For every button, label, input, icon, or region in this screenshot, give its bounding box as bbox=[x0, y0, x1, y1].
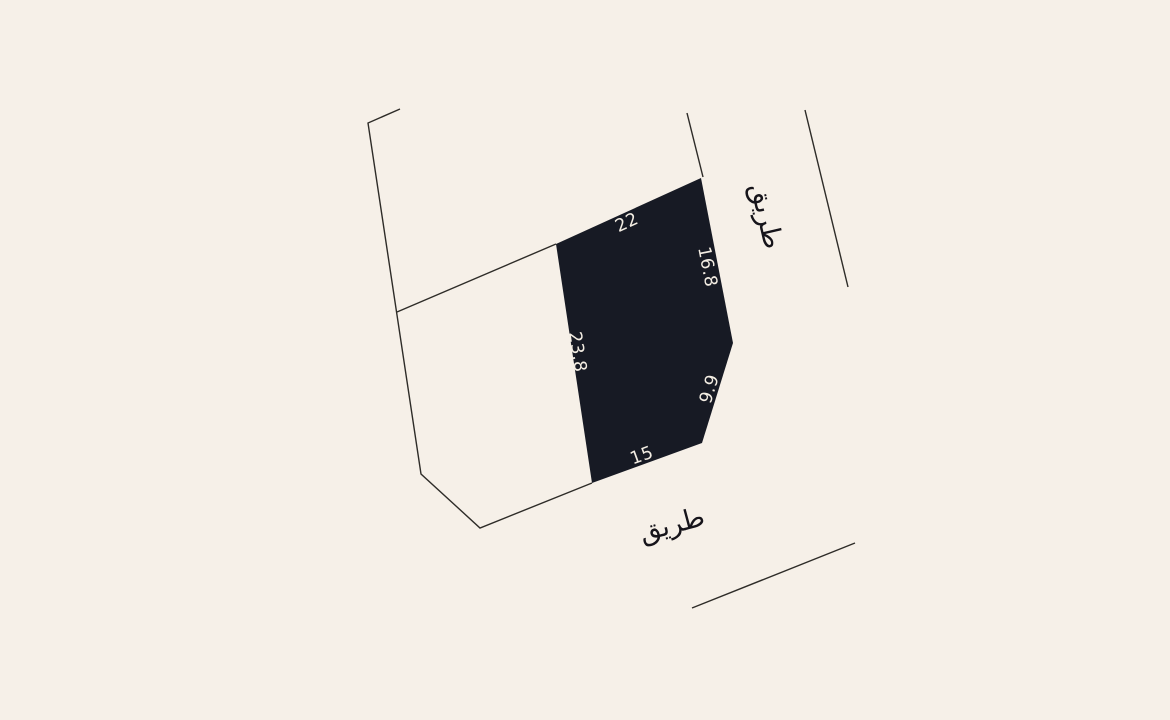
plot-map-canvas: 22 16.8 9.9 15 23.8 طريق طريق bbox=[0, 0, 1170, 720]
plot-map: 22 16.8 9.9 15 23.8 طريق طريق bbox=[0, 0, 1170, 720]
